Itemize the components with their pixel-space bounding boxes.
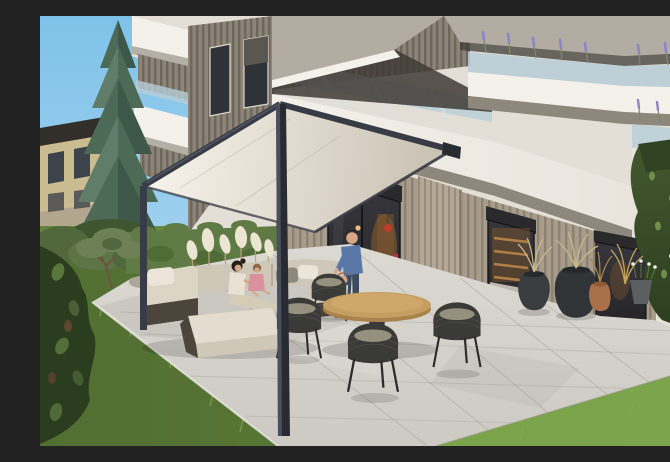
chair-shadow — [436, 370, 480, 379]
throw-pillow — [147, 267, 175, 287]
leaf — [649, 172, 655, 181]
architectural-render: Architectural rendering of a modern mult… — [40, 16, 670, 446]
man-face — [346, 232, 358, 244]
white-flower — [639, 259, 643, 263]
white-flower — [647, 262, 651, 266]
jug-rim — [593, 282, 607, 287]
dry-leaf — [64, 320, 72, 332]
white-flower — [653, 265, 657, 269]
pendant-bulb — [355, 225, 360, 230]
table-top-highlight — [331, 293, 423, 313]
house-window — [48, 151, 64, 184]
urn-pot — [518, 274, 550, 310]
leaf — [655, 222, 661, 231]
throw-pillow — [298, 264, 319, 279]
woman-torso — [228, 272, 246, 296]
window — [210, 44, 230, 116]
red-pendant-lamp — [384, 224, 392, 232]
house-window — [48, 192, 64, 212]
girl-torso — [248, 274, 265, 291]
dry-leaf — [48, 372, 56, 384]
chair-shadow — [351, 393, 399, 403]
half-lowered-blind — [244, 36, 268, 66]
hedge-shade — [146, 246, 174, 262]
girl-face — [254, 267, 259, 272]
scene-canvas — [40, 16, 670, 446]
leaf — [661, 270, 667, 279]
hedge-top — [163, 223, 189, 235]
terracotta-jug — [589, 284, 610, 311]
foliage-shade — [102, 238, 122, 250]
pergola-post-left — [140, 186, 147, 330]
woman-face — [235, 265, 242, 272]
woman-hair-bun — [240, 258, 245, 263]
white-flower — [631, 262, 635, 266]
